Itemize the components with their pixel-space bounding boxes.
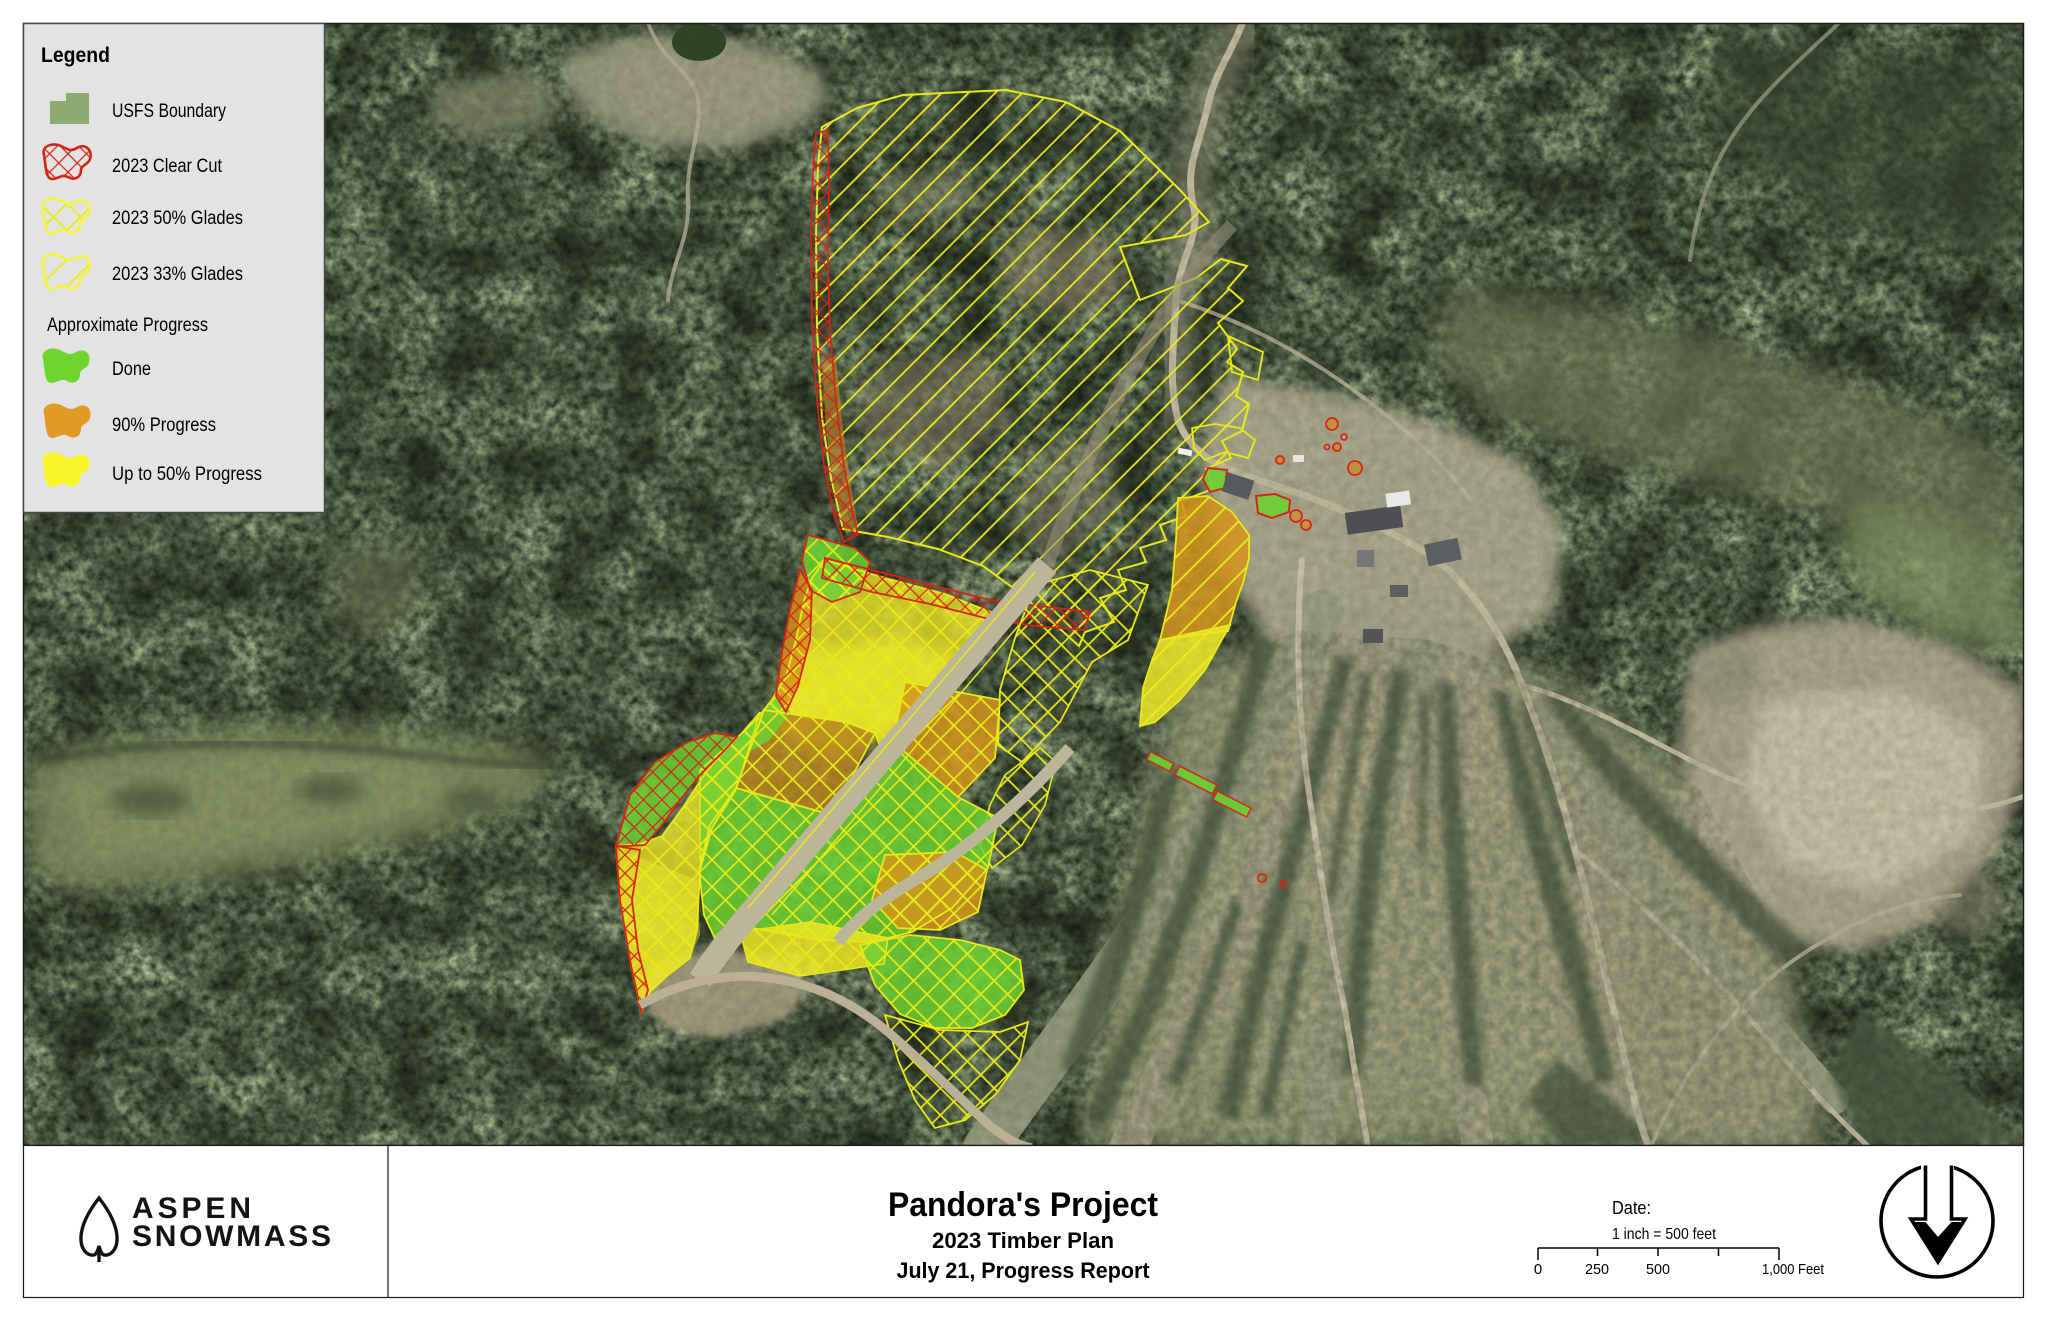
svg-text:Approximate Progress: Approximate Progress <box>47 315 208 336</box>
svg-text:July 21, Progress Report: July 21, Progress Report <box>897 1258 1151 1283</box>
svg-text:1,000 Feet: 1,000 Feet <box>1762 1261 1825 1278</box>
svg-text:USFS Boundary: USFS Boundary <box>112 101 226 122</box>
svg-text:Up to 50% Progress: Up to 50% Progress <box>112 464 262 485</box>
svg-text:1 inch = 500 feet: 1 inch = 500 feet <box>1612 1226 1716 1243</box>
svg-text:0: 0 <box>1534 1261 1542 1278</box>
svg-text:2023 Timber Plan: 2023 Timber Plan <box>932 1228 1114 1253</box>
svg-text:2023 33% Glades: 2023 33% Glades <box>112 264 243 285</box>
svg-text:Done: Done <box>112 359 151 380</box>
svg-text:Pandora's Project: Pandora's Project <box>888 1186 1158 1224</box>
svg-text:2023 50% Glades: 2023 50% Glades <box>112 208 243 229</box>
svg-text:Legend: Legend <box>41 44 110 67</box>
svg-text:250: 250 <box>1585 1261 1609 1278</box>
svg-text:SNOWMASS: SNOWMASS <box>132 1220 331 1253</box>
svg-text:2023 Clear Cut: 2023 Clear Cut <box>112 156 223 177</box>
svg-text:Date:: Date: <box>1612 1198 1651 1218</box>
svg-text:90% Progress: 90% Progress <box>112 415 216 436</box>
svg-text:500: 500 <box>1646 1261 1670 1278</box>
